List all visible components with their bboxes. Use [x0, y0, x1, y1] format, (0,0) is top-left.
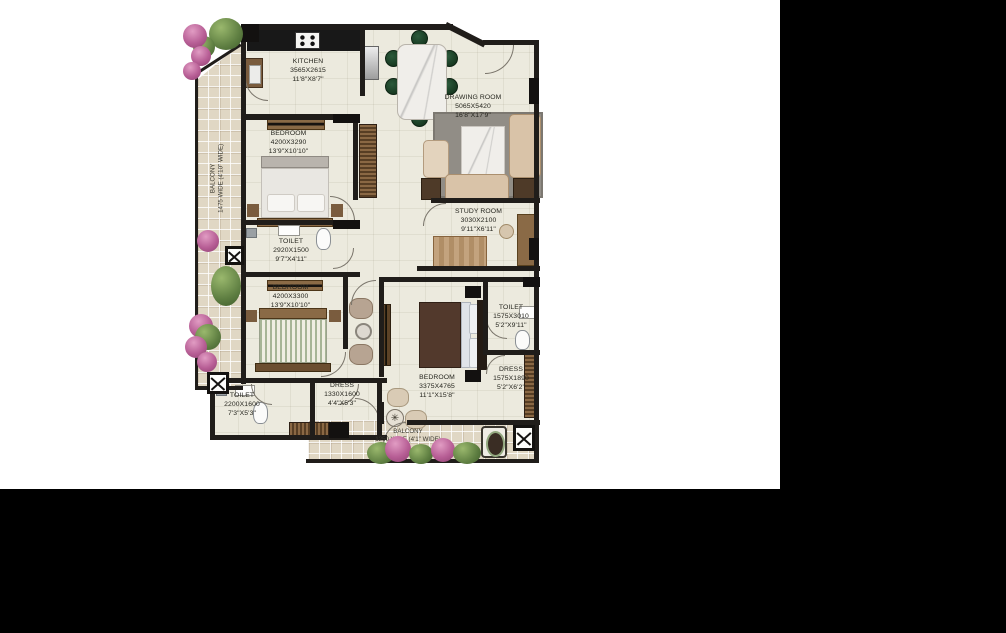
wall [431, 198, 540, 203]
wall [483, 350, 540, 355]
room-label-toilet-3: TOILET 2200X1600 7'3"X5'3" [211, 392, 273, 418]
room-dim-mm: 1575X1890 [485, 375, 537, 384]
nightstand [247, 204, 259, 217]
room-label-dress-1: DRESS 1330X1600 4'4"X5'3" [309, 382, 375, 408]
plant-icon [183, 62, 201, 80]
sofa [423, 140, 449, 178]
balcony-left-label: BALCONY 1475 WIDE (4'10" WIDE) [210, 133, 227, 223]
room-label-dress-2: DRESS 1575X1890 5'2"X6'2" [485, 366, 537, 392]
wall [241, 24, 453, 30]
room-dim-ft: 16'8"X17'9" [423, 112, 523, 121]
balcony-name: BALCONY [348, 428, 468, 436]
room-label-bedroom-3: BEDROOM 3375X4765 11'1"X15'8" [393, 374, 481, 400]
room-name: BEDROOM [393, 374, 481, 383]
wall [377, 378, 382, 435]
room-name: TOILET [485, 304, 537, 313]
room-dim-ft: 13'9"X10'10" [243, 302, 338, 311]
nightstand [329, 310, 341, 322]
room-label-toilet-1: TOILET 2920X1500 9'7"X4'11" [241, 238, 341, 264]
pillar [241, 24, 259, 42]
side-table [421, 178, 441, 200]
plant-icon [197, 352, 217, 372]
wash-basin-icon [481, 426, 507, 458]
nightstand [245, 310, 257, 322]
wall [483, 40, 539, 45]
room-dim-mm: 3375X4765 [393, 383, 481, 392]
toilet-icon [515, 330, 530, 350]
room-label-toilet-2: TOILET 1575X3010 5'2"X9'11" [485, 304, 537, 330]
black-mask-bottom [0, 489, 1006, 633]
center-table [461, 126, 505, 176]
room-dim-ft: 9'7"X4'11" [241, 256, 341, 265]
shaft-icon [513, 425, 535, 451]
wall [379, 277, 384, 377]
bed [419, 302, 485, 368]
plant-icon [431, 438, 455, 462]
room-dim-ft: 11'1"X15'8" [393, 392, 481, 401]
room-dim-ft: 4'4"X5'3" [309, 400, 375, 409]
screenshot-canvas: { "figure": "apartment-floor-plan", "pla… [0, 0, 1006, 633]
room-label-drawing-room: DRAWING ROOM 5065X5420 16'8"X17'9" [423, 94, 523, 120]
room-dim-ft: 7'3"X5'3" [211, 410, 273, 419]
bed [261, 156, 329, 224]
shaft-icon [207, 372, 229, 394]
room-dim-ft: 5'2"X6'2" [485, 384, 537, 393]
room-name: DRESS [485, 366, 537, 375]
pillar [329, 422, 349, 438]
floor-plan: ✳ KITCHEN 3565X2615 11'8"X8'7" DRAWING R… [183, 18, 545, 464]
balcony-name: BALCONY [210, 133, 218, 223]
pillar [465, 286, 481, 298]
wall [353, 114, 358, 200]
room-label-bedroom-2: BEDROOM 4200X3300 13'9"X10'10" [243, 284, 338, 310]
pillar [333, 220, 360, 229]
wall [343, 277, 348, 349]
room-dim-mm: 1575X3010 [485, 313, 537, 322]
room-name: BEDROOM [241, 130, 336, 139]
room-dim-mm: 4200X3300 [243, 293, 338, 302]
fridge-icon [363, 46, 379, 80]
room-dim-mm: 5065X5420 [423, 103, 523, 112]
room-dim-mm: 3030X2100 [431, 217, 526, 226]
balcony-size: 1475 WIDE (4'10" WIDE) [218, 133, 226, 223]
pillar [333, 114, 360, 123]
pillar [529, 78, 539, 104]
plant-icon [197, 230, 219, 252]
room-name: DRAWING ROOM [423, 94, 523, 103]
room-label-study-room: STUDY ROOM 3030X2100 9'11"X6'11" [431, 208, 526, 234]
plant-icon [409, 444, 433, 464]
pillar [529, 238, 539, 260]
pillar [523, 277, 540, 287]
wardrobe [289, 422, 329, 436]
room-dim-mm: 2200X1600 [211, 401, 273, 410]
plant-icon [183, 24, 207, 48]
room-dim-ft: 11'8"X8'7" [253, 76, 363, 85]
wall [379, 277, 540, 282]
room-name: KITCHEN [253, 58, 363, 67]
room-dim-mm: 2920X1500 [241, 247, 341, 256]
room-dim-ft: 13'9"X10'10" [241, 148, 336, 157]
armchair [349, 344, 373, 365]
wardrobe [359, 124, 377, 198]
shower-icon [246, 228, 257, 238]
room-name: STUDY ROOM [431, 208, 526, 217]
room-dim-mm: 4200X3290 [241, 139, 336, 148]
room-dim-ft: 5'2"X9'11" [485, 322, 537, 331]
room-name: BEDROOM [243, 284, 338, 293]
wall [241, 24, 246, 384]
sink-icon [278, 225, 300, 236]
stove-icon [295, 32, 320, 49]
room-name: DRESS [309, 382, 375, 391]
room-label-bedroom-1: BEDROOM 4200X3290 13'9"X10'10" [241, 130, 336, 156]
room-dim-mm: 1330X1600 [309, 391, 375, 400]
room-dim-mm: 3565X2615 [253, 67, 363, 76]
plant-icon [211, 266, 241, 306]
wall [417, 266, 540, 271]
study-daybed [433, 236, 487, 268]
room-name: TOILET [241, 238, 341, 247]
room-name: TOILET [211, 392, 273, 401]
plant-icon [385, 436, 411, 462]
bed [259, 308, 327, 372]
room-label-kitchen: KITCHEN 3565X2615 11'8"X8'7" [253, 58, 363, 84]
wall [241, 114, 343, 120]
round-table [355, 323, 372, 340]
plant-icon [453, 442, 481, 464]
room-dim-ft: 9'11"X6'11" [431, 226, 526, 235]
